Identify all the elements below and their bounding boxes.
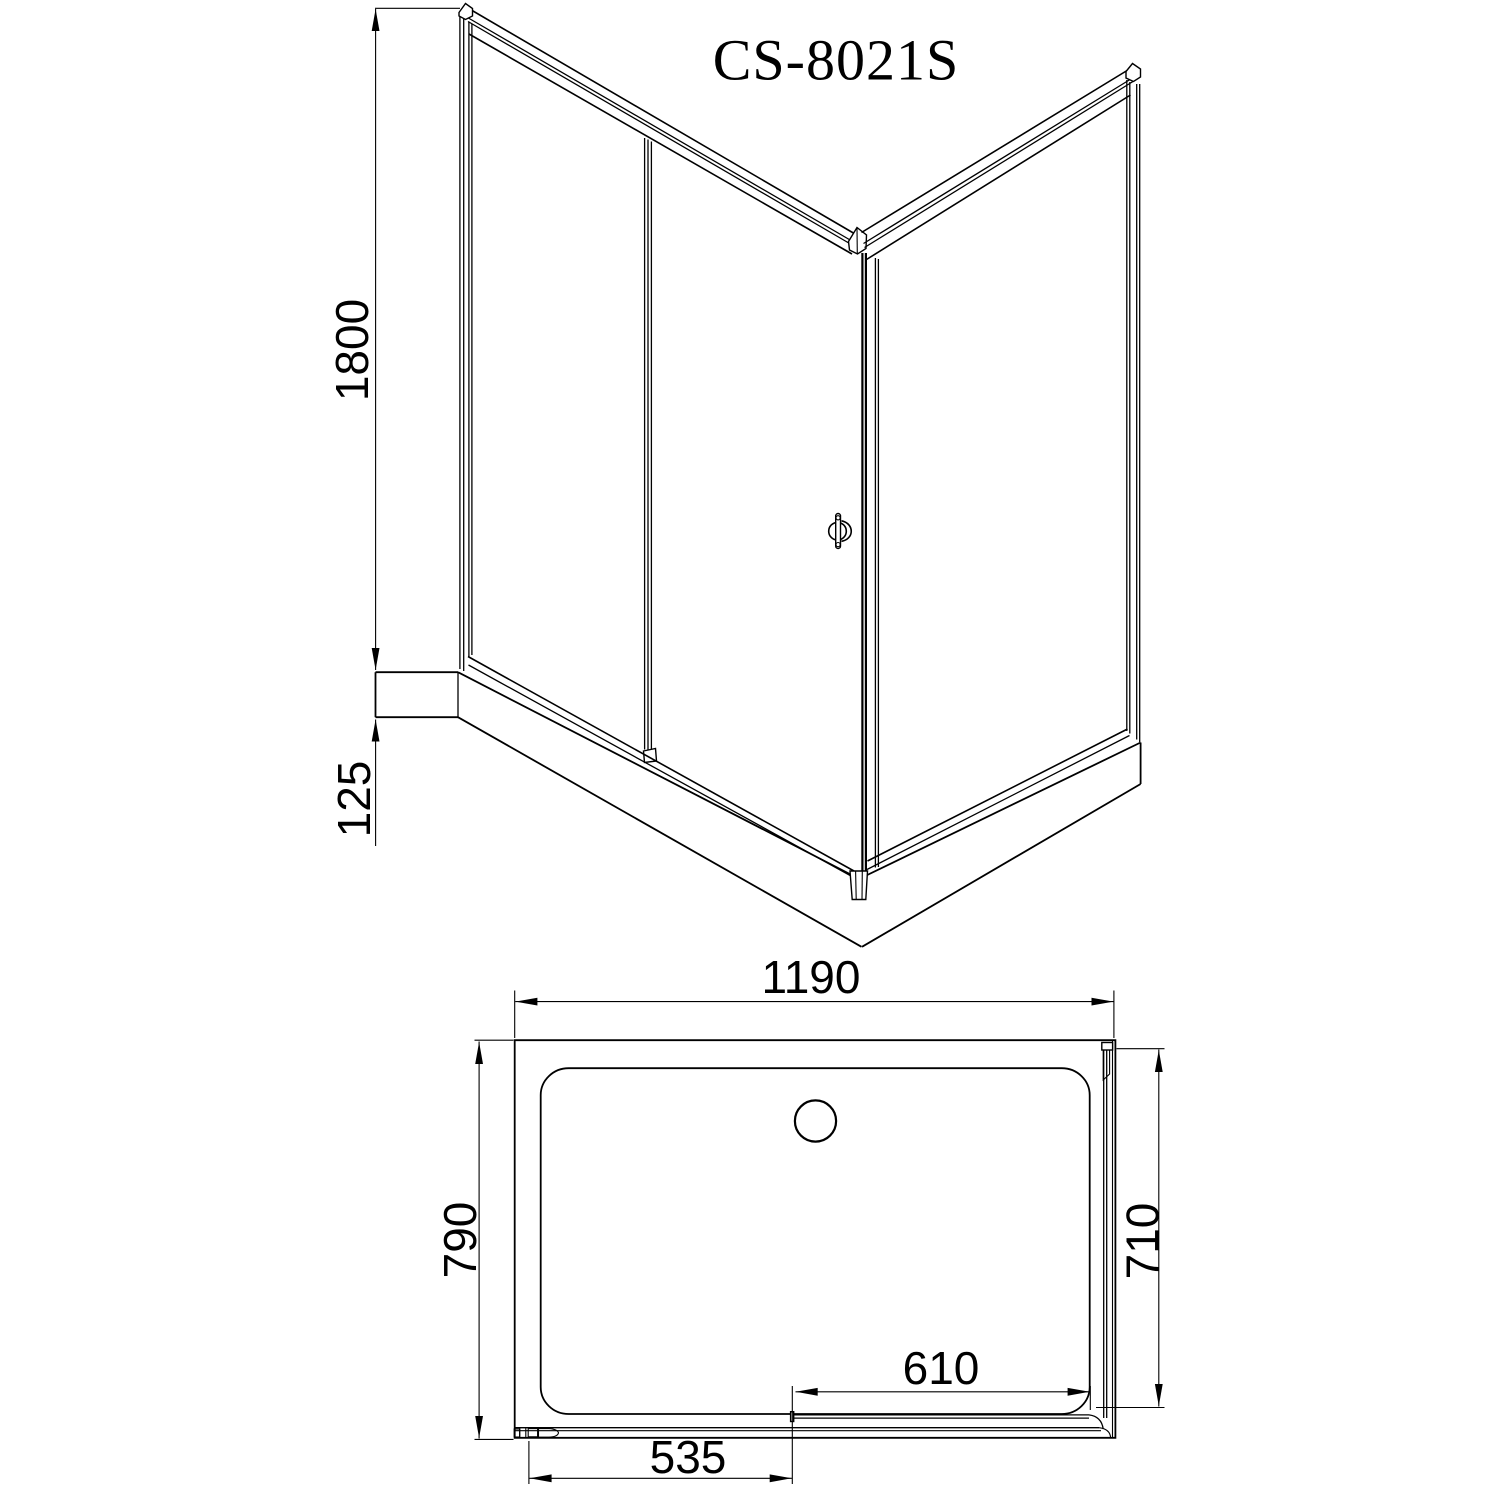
dimension-depth-790: 790 [434,1040,514,1439]
arrow-down-icon [475,1416,483,1438]
dimension-label-width: 1190 [762,951,861,1003]
right-frame-profile [1127,80,1140,742]
right-panel-top-rail [862,68,1134,260]
door-roller-bracket [514,1428,558,1438]
dimension-label-opening: 610 [903,1342,980,1394]
top-left-corner-cap [459,4,473,20]
left-frame-profile [460,16,472,671]
arrow-up-icon [372,9,380,31]
dimension-width-1190: 1190 [515,951,1114,1038]
arrow-right-icon [770,1474,792,1482]
model-number-title: CS-8021S [713,28,960,93]
arrow-up-icon [475,1042,483,1064]
dimension-height-1800: 1800 [326,8,460,670]
arrow-up-icon [372,720,380,742]
right-side-door-panel [1102,1043,1113,1419]
panel-divider-profile [644,138,657,763]
dimension-label-tray-height: 125 [328,761,380,838]
arrow-right-icon [1068,1388,1090,1396]
arrow-right-icon [1092,998,1114,1006]
top-right-corner-cap [1126,64,1141,82]
arrow-up-icon [1155,1050,1163,1072]
dimension-label-depth: 790 [434,1202,486,1279]
door-handle-icon [829,514,852,549]
drain-icon [795,1100,836,1141]
technical-drawing-page: CS-8021S [0,0,1500,1500]
bottom-track [468,657,1130,877]
plan-view: 1190 790 710 610 [434,951,1169,1484]
sliding-door-leaf [791,1412,1104,1429]
arrow-left-icon [796,1388,818,1396]
arrow-left-icon [530,1474,552,1482]
arrow-down-icon [1155,1384,1163,1406]
dimension-opening-610: 610 [792,1342,1090,1484]
bottom-door-track [516,1428,1111,1438]
dimension-tray-height-125: 125 [328,720,380,847]
dimension-label-side: 710 [1117,1203,1169,1280]
elevation-view: 1800 125 [326,4,1141,947]
arrow-left-icon [515,998,537,1006]
shower-tray-base [376,672,1141,947]
drawing-canvas: CS-8021S [0,0,1500,1500]
tray-basin [541,1068,1090,1414]
dimension-label-height: 1800 [326,299,378,401]
arrow-down-icon [372,648,380,670]
dimension-label-door: 535 [650,1431,727,1483]
corner-post [849,228,879,872]
dimension-door-535: 535 [529,1431,792,1484]
